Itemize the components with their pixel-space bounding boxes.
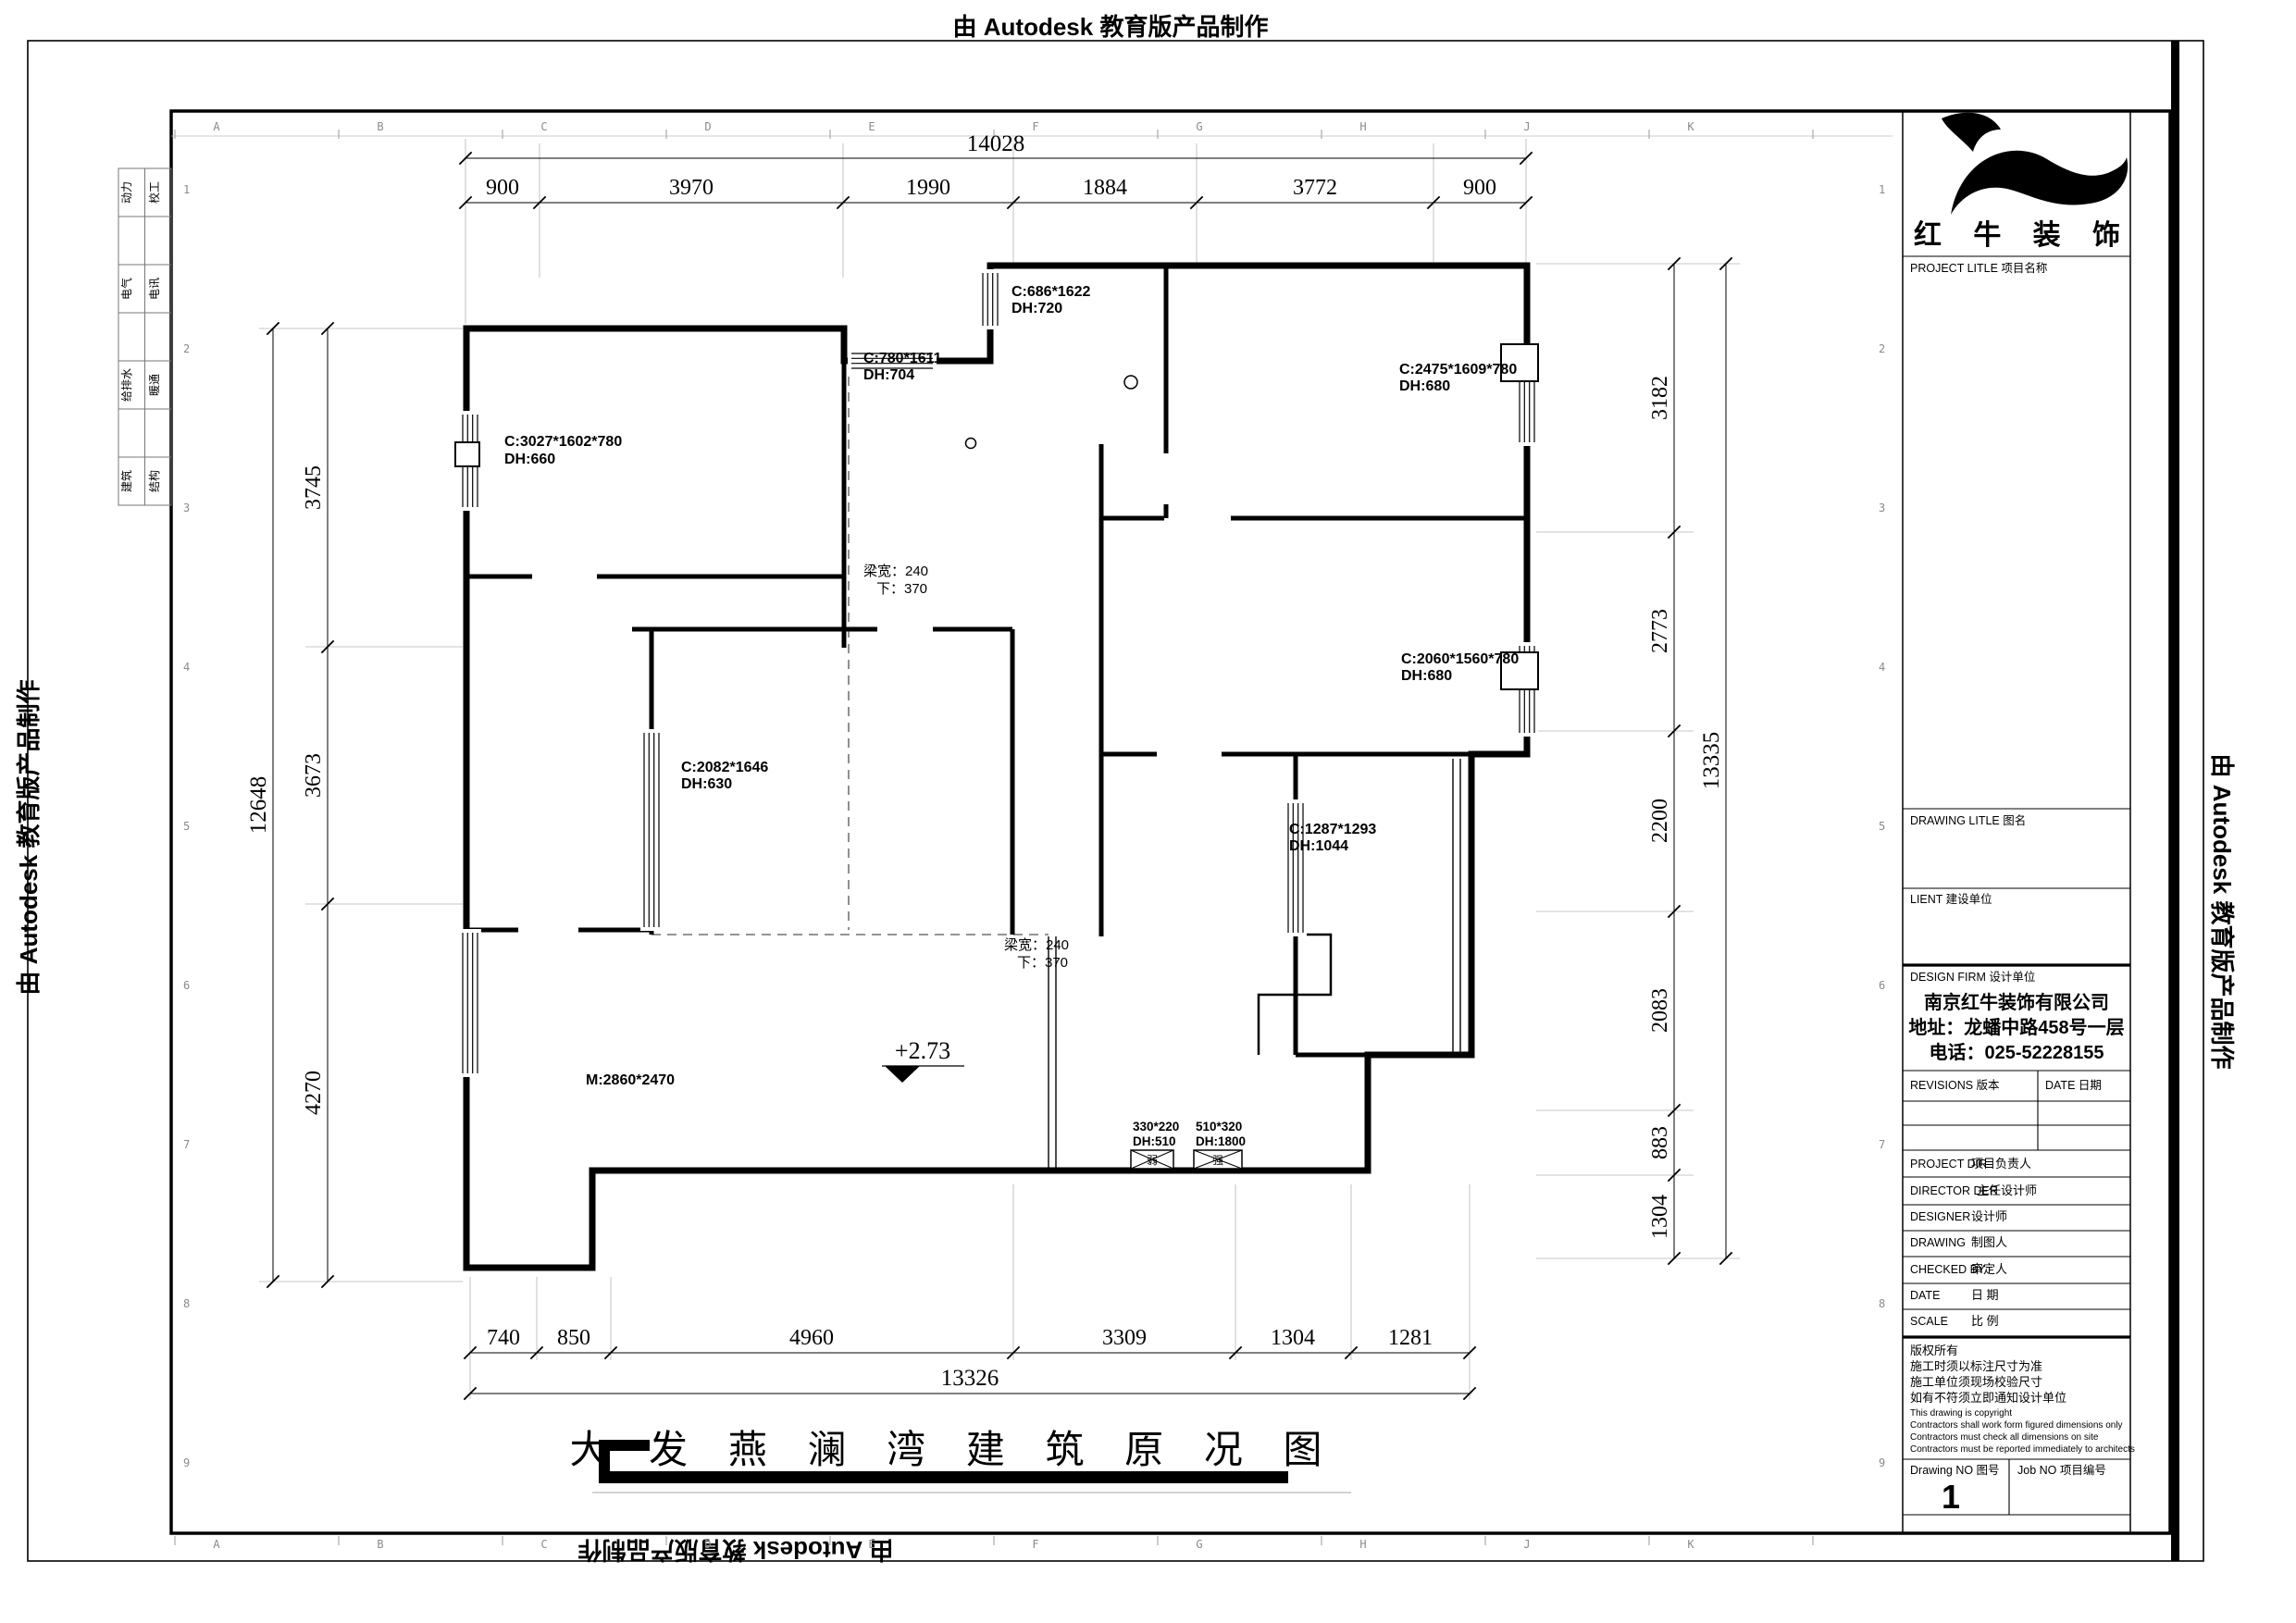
level-triangle-icon: [885, 1066, 920, 1083]
ruler-letter: E: [868, 120, 875, 133]
ruler-number: 8: [1879, 1297, 1885, 1310]
exterior-walls: [466, 266, 1527, 1268]
ruler-letter: E: [868, 1538, 875, 1551]
copyright-line: Contractors must be reported immediately…: [1910, 1444, 2135, 1455]
dim-seg: 883: [1648, 1126, 1672, 1159]
discipline-label: 建筑: [119, 470, 133, 492]
tb-drawing-no-label: Drawing NO 图号: [1910, 1464, 2000, 1477]
ruler-letter: A: [213, 120, 220, 133]
bull-logo-icon: [1942, 113, 2001, 152]
ruler-letter: H: [1359, 1538, 1366, 1551]
level-marker: +2.73: [882, 1037, 964, 1083]
dim-seg: 3745: [302, 465, 326, 510]
tb-firm-label: DESIGN FIRM 设计单位: [1910, 970, 2035, 984]
ruler-letter: F: [1032, 1538, 1038, 1551]
window-label: DH:1044: [1289, 838, 1348, 854]
tb-row-cn: 设计师: [1971, 1209, 2007, 1223]
ruler-number: 1: [183, 183, 190, 196]
window-label: DH:630: [681, 776, 732, 792]
beam-note: 梁宽：240: [1004, 937, 1069, 953]
ruler-letter: G: [1196, 120, 1202, 133]
ruler-letters-top: A B C D E F G H J K: [213, 120, 1694, 133]
discipline-label: 校工: [147, 181, 161, 204]
outlet-label: 330*220: [1133, 1120, 1179, 1134]
ruler-number: 7: [183, 1138, 190, 1151]
ruler-number: 6: [183, 979, 190, 992]
dim-seg: 850: [557, 1326, 590, 1350]
dim-seg: 900: [1463, 176, 1496, 200]
tb-drawing-label: DRAWING LITLE 图名: [1910, 813, 2026, 827]
firm-info: 南京红牛装饰有限公司 地址：龙蟠中路458号一层 电话：025-52228155: [1908, 991, 2124, 1063]
ruler-number: 4: [183, 661, 190, 674]
title-block: 红 牛 装 饰 PROJECT LITLE 项目名称 DRAWING LITLE…: [1903, 111, 2135, 1533]
outlet-label: DH:1800: [1196, 1134, 1246, 1148]
dim-total: 13335: [1699, 732, 1724, 790]
ruler-letter: H: [1359, 120, 1366, 133]
ruler-number: 7: [1879, 1138, 1885, 1151]
copyright-line: Contractors shall work form figured dime…: [1910, 1420, 2123, 1431]
ruler-number: 2: [183, 342, 190, 355]
firm-name: 南京红牛装饰有限公司: [1924, 991, 2109, 1013]
beam-note: 梁宽：240: [863, 564, 928, 579]
window-label: DH:680: [1399, 378, 1450, 394]
tb-date-col-label: DATE 日期: [2045, 1079, 2102, 1092]
banner-bottom: 由 Autodesk 教育版产品制作: [578, 1536, 894, 1564]
dim-seg: 3309: [1102, 1326, 1147, 1350]
dim-total: 14028: [967, 131, 1025, 156]
dim-bottom: 740 850 4960 3309 1304 1281 13326: [465, 1326, 1475, 1399]
dim-seg: 3182: [1648, 376, 1672, 420]
balcony-rails: [1049, 759, 1460, 1168]
dim-total: 12648: [246, 776, 271, 835]
drawing-number: 1: [1942, 1478, 1960, 1516]
dim-right: 3182 2773 2200 2083 883 1304 13335: [1648, 258, 1731, 1264]
dim-seg: 1990: [906, 176, 950, 200]
dim-seg: 740: [487, 1326, 520, 1350]
ruler-number: 6: [1879, 979, 1885, 992]
dim-seg: 900: [486, 176, 519, 200]
firm-address: 地址：龙蟠中路458号一层: [1908, 1016, 2124, 1038]
ruler-letter: A: [213, 1538, 220, 1551]
outlet-strong-tag: 强: [1212, 1154, 1223, 1167]
tb-row-cn: 日 期: [1971, 1288, 1999, 1302]
dim-total: 13326: [941, 1366, 999, 1391]
dim-seg: 2200: [1648, 799, 1672, 843]
copyright-line: Contractors must check all dimensions on…: [1910, 1432, 2099, 1443]
dim-seg: 1281: [1388, 1326, 1433, 1350]
window-label: DH:660: [504, 452, 555, 467]
window-label: C:780*1611: [863, 351, 942, 366]
tb-copyright: 版权所有 施工时须以标注尺寸为准 施工单位须现场校验尺寸 如有不符须立即通知设计…: [1910, 1344, 2135, 1455]
ruler-number: 5: [1879, 820, 1885, 833]
drawing-title: 大 发 燕 澜 湾 建 筑 原 况 图: [569, 1428, 1351, 1493]
copyright-line: 版权所有: [1910, 1344, 1958, 1357]
page-title: 大 发 燕 澜 湾 建 筑 原 况 图: [569, 1428, 1336, 1471]
company-logo: 红 牛 装 饰: [1914, 113, 2132, 251]
tb-row-en: DESIGNER: [1910, 1210, 1970, 1223]
discipline-label: 结构: [147, 470, 161, 492]
floor-plan: +2.73 弱 强 C:3027*1602*780 DH:660 C:780*1…: [259, 139, 1740, 1399]
ruler-letter: J: [1523, 120, 1530, 133]
dim-seg: 4960: [789, 1326, 834, 1350]
tb-row-cn: 制图人: [1971, 1235, 2007, 1249]
ruler-number: 8: [183, 1297, 190, 1310]
ruler-letter: K: [1687, 120, 1694, 133]
window-label: DH:704: [863, 367, 914, 383]
copyright-line: 施工单位须现场校验尺寸: [1910, 1375, 2042, 1389]
tb-row-en: DRAWING: [1910, 1236, 1966, 1249]
tb-client-label: LIENT 建设单位: [1910, 892, 1992, 906]
discipline-label: 暖通: [148, 374, 161, 396]
firm-phone: 电话：025-52228155: [1929, 1042, 2104, 1063]
discipline-label: 电讯: [148, 278, 161, 300]
ruler-numbers-left: 1 2 3 4 5 6 7 8 9: [183, 183, 190, 1469]
banner-right: 由 Autodesk 教育版产品制作: [2208, 754, 2236, 1070]
ruler-letter: C: [540, 1538, 547, 1551]
discipline-label: 电气: [119, 278, 133, 300]
copyright-line: 施工时须以标注尺寸为准: [1910, 1359, 2042, 1373]
beam-note: 下：370: [1017, 955, 1068, 971]
tb-job-no-label: Job NO 项目编号: [2017, 1463, 2106, 1477]
dim-top: 14028 900 3970 1990 1884 3772 900: [460, 131, 1532, 208]
copyright-line: This drawing is copyright: [1910, 1408, 2012, 1419]
ruler-letter: J: [1523, 1538, 1530, 1551]
ruler-number: 3: [1879, 502, 1885, 514]
dim-left: 12648 3745 3673 4270: [246, 323, 333, 1287]
dim-seg: 4270: [302, 1071, 326, 1115]
tb-row-en: DATE: [1910, 1289, 1940, 1302]
dim-seg: 3673: [302, 753, 326, 798]
banner-top: 由 Autodesk 教育版产品制作: [953, 13, 1269, 41]
window-label: C:2082*1646: [681, 760, 768, 775]
grid-ruler: [171, 130, 1893, 1545]
outlet-weak-tag: 弱: [1147, 1154, 1158, 1167]
level-value: +2.73: [895, 1037, 950, 1064]
dim-seg: 1304: [1271, 1326, 1315, 1350]
ruler-number: 2: [1879, 342, 1885, 355]
tb-project-label: PROJECT LITLE 项目名称: [1910, 261, 2047, 275]
interior-walls: [466, 266, 1527, 1055]
dim-seg: 3772: [1293, 176, 1337, 200]
ruler-letter: F: [1032, 120, 1038, 133]
dim-seg: 1884: [1083, 176, 1127, 200]
bull-logo-icon: [1951, 151, 2128, 215]
tb-row-cn: 主任设计师: [1977, 1183, 2037, 1197]
ruler-letter: G: [1196, 1538, 1202, 1551]
discipline-label: 动力: [120, 181, 133, 204]
discipline-label: 给排水: [120, 368, 133, 402]
outlet-label: 510*320: [1196, 1120, 1242, 1134]
window-label: C:3027*1602*780: [504, 434, 622, 450]
dim-seg: 2083: [1648, 988, 1672, 1033]
discipline-stamps: 动力 校工 电气 电讯 给排水 暖通 建筑 结构: [118, 168, 171, 505]
ruler-number: 3: [183, 502, 190, 514]
drawing-frame: [171, 111, 2170, 1533]
ruler-number: 9: [1879, 1456, 1885, 1469]
dim-seg: 3970: [669, 176, 714, 200]
beam-note: 下：370: [876, 581, 927, 597]
tb-signature-rows: PROJECT DIR 项目负责人 DIRECTOR DER 主任设计师 DES…: [1910, 1157, 2037, 1328]
ruler-numbers-right: 1 2 3 4 5 6 7 8 9: [1879, 183, 1885, 1469]
banner-left: 由 Autodesk 教育版产品制作: [15, 680, 43, 996]
window-label: DH:680: [1401, 668, 1452, 684]
tb-row-cn: 审定人: [1971, 1262, 2007, 1276]
ruler-number: 1: [1879, 183, 1885, 196]
cad-sheet: 由 Autodesk 教育版产品制作 由 Autodesk 教育版产品制作 由 …: [0, 0, 2296, 1623]
ruler-letter: K: [1687, 1538, 1694, 1551]
door-knob-symbol: [1124, 376, 1137, 389]
beam-dashed-lines: [652, 361, 1049, 935]
tb-row-en: SCALE: [1910, 1315, 1948, 1328]
dim-seg: 2773: [1648, 609, 1672, 653]
ruler-letter: B: [377, 120, 383, 133]
ruler-number: 5: [183, 820, 190, 833]
ruler-letter: D: [704, 120, 711, 133]
door-label: M:2860*2470: [586, 1072, 675, 1088]
window-openings: [455, 269, 1538, 1077]
brand-name: 红 牛 装 饰: [1914, 220, 2132, 251]
outlet-symbols: 弱 强: [1131, 1150, 1242, 1169]
tb-row-cn: 比 例: [1971, 1314, 1999, 1328]
tb-row-cn: 项目负责人: [1971, 1157, 2031, 1171]
door-knob-symbol: [966, 439, 976, 449]
ruler-number: 4: [1879, 661, 1885, 674]
ruler-letter: C: [540, 120, 547, 133]
tb-revisions-label: REVISIONS 版本: [1910, 1079, 2000, 1092]
title-underline: [599, 1471, 1288, 1483]
window-label: DH:720: [1011, 301, 1062, 316]
ruler-letters-bottom: A B C D E F G H J K: [213, 1538, 1694, 1551]
ruler-letter: D: [704, 1538, 711, 1551]
outlet-label: DH:510: [1133, 1134, 1176, 1148]
dim-seg: 1304: [1648, 1195, 1672, 1239]
copyright-line: 如有不符须立即通知设计单位: [1910, 1391, 2066, 1405]
window-label: C:2060*1560*780: [1401, 651, 1519, 667]
ruler-letter: B: [377, 1538, 383, 1551]
heavy-divider-bar: [2171, 41, 2179, 1561]
window-label: C:2475*1609*780: [1399, 362, 1517, 378]
ruler-number: 9: [183, 1456, 190, 1469]
window-box: [455, 442, 479, 466]
window-label: C:686*1622: [1011, 284, 1091, 300]
window-label: C:1287*1293: [1289, 822, 1376, 837]
